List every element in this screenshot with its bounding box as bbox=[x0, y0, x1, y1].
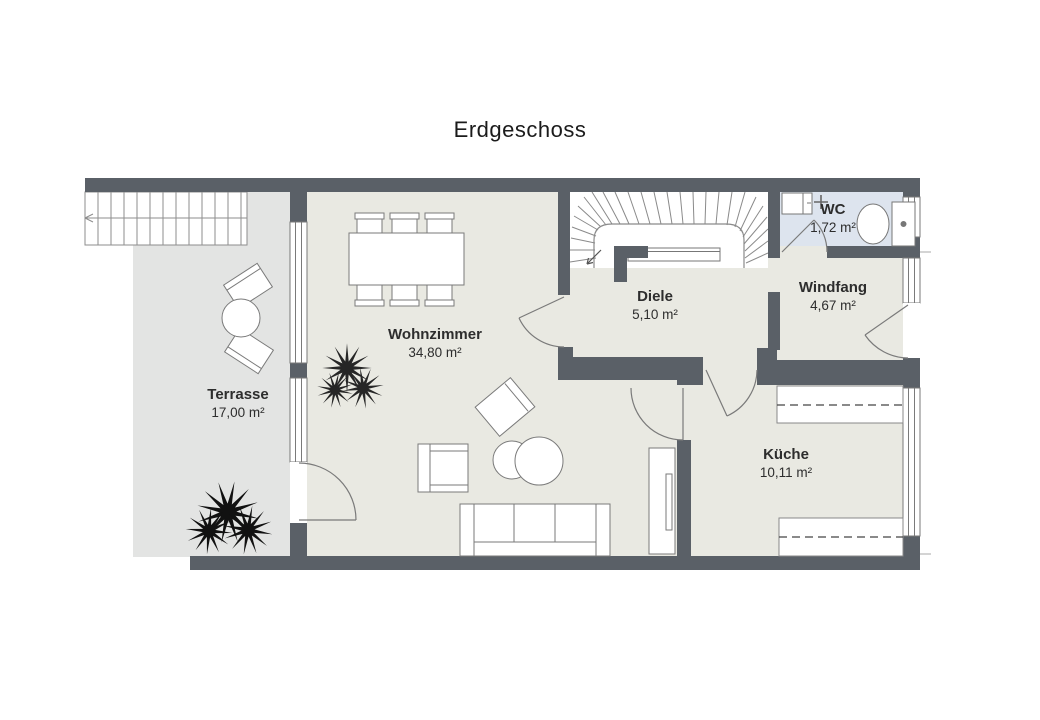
wall-bottom bbox=[190, 556, 920, 570]
dining-table bbox=[349, 233, 464, 285]
terrace-table bbox=[222, 299, 260, 337]
room-name: Windfang bbox=[758, 279, 908, 297]
wall-diele-end-block bbox=[677, 357, 703, 385]
room-area: 5,10 m² bbox=[580, 306, 730, 324]
label-diele: Diele 5,10 m² bbox=[580, 288, 730, 324]
sofa bbox=[460, 504, 610, 556]
room-name: Wohnzimmer bbox=[360, 326, 510, 344]
tall-cabinet bbox=[649, 448, 675, 554]
label-wohnzimmer: Wohnzimmer 34,80 m² bbox=[360, 326, 510, 362]
window-kueche bbox=[903, 388, 920, 536]
label-windfang: Windfang 4,67 m² bbox=[758, 279, 908, 315]
room-name: Küche bbox=[711, 446, 861, 464]
wall-left-pier-mid bbox=[290, 363, 307, 378]
wall-kitchen bbox=[677, 440, 691, 557]
room-area: 17,00 m² bbox=[163, 404, 313, 422]
exterior-stairs bbox=[85, 192, 247, 245]
terrace-door-opening bbox=[290, 462, 307, 523]
armchair-square bbox=[418, 444, 468, 492]
wall-left-pier-top bbox=[290, 178, 307, 222]
wall-stair-left bbox=[558, 192, 570, 295]
dining-set bbox=[349, 213, 464, 306]
wall-left-pier-bottom bbox=[290, 523, 307, 557]
wall-right-seg1 bbox=[903, 178, 920, 198]
room-name: WC bbox=[758, 201, 908, 219]
wall-right-seg4 bbox=[903, 536, 920, 570]
room-area: 1,72 m² bbox=[758, 219, 908, 237]
floor-plan-drawing bbox=[0, 0, 1040, 720]
label-terrasse: Terrasse 17,00 m² bbox=[163, 386, 313, 422]
room-area: 4,67 m² bbox=[758, 297, 908, 315]
room-name: Terrasse bbox=[163, 386, 313, 404]
room-name: Diele bbox=[580, 288, 730, 306]
window-terrace-1 bbox=[290, 222, 307, 363]
floor-plan-page: Erdgeschoss bbox=[0, 0, 1040, 720]
dimension-ticks bbox=[920, 252, 931, 554]
label-kueche: Küche 10,11 m² bbox=[711, 446, 861, 482]
wall-top bbox=[85, 178, 920, 192]
room-area: 10,11 m² bbox=[711, 464, 861, 482]
wall-wc-bottom bbox=[827, 246, 920, 258]
room-area: 34,80 m² bbox=[360, 344, 510, 362]
wall-windfang-bottom bbox=[757, 360, 920, 385]
label-wc: WC 1,72 m² bbox=[758, 201, 908, 237]
